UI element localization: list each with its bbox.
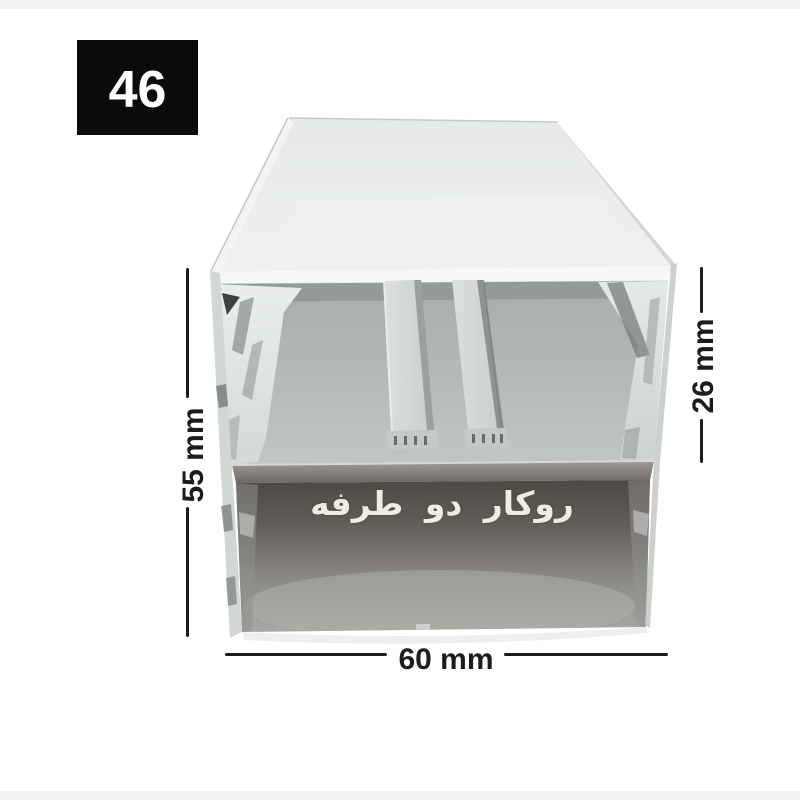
product-photo <box>0 0 800 800</box>
diffuser-cover <box>210 118 675 284</box>
width-dimension-line-left <box>225 653 387 656</box>
upper-channel-dimension-line-top <box>700 267 703 313</box>
aluminum-profile-illustration <box>0 0 800 800</box>
height-dimension-line-bottom <box>186 507 189 637</box>
width-dimension-line-right <box>504 653 668 656</box>
width-label: 60 mm <box>386 642 506 678</box>
upper-channel-dimension-line-bottom <box>700 419 703 463</box>
upper-channel-height-label: 26 mm <box>686 311 722 421</box>
height-dimension-line-top <box>186 268 189 398</box>
right-clip-detail <box>633 510 649 536</box>
upper-channel-interior <box>214 280 668 465</box>
mid-shelf-edge <box>232 461 654 483</box>
product-type-label: روکار دو طرفه <box>282 482 602 526</box>
total-height-label: 55 mm <box>176 400 212 510</box>
left-clip-detail <box>239 512 255 538</box>
